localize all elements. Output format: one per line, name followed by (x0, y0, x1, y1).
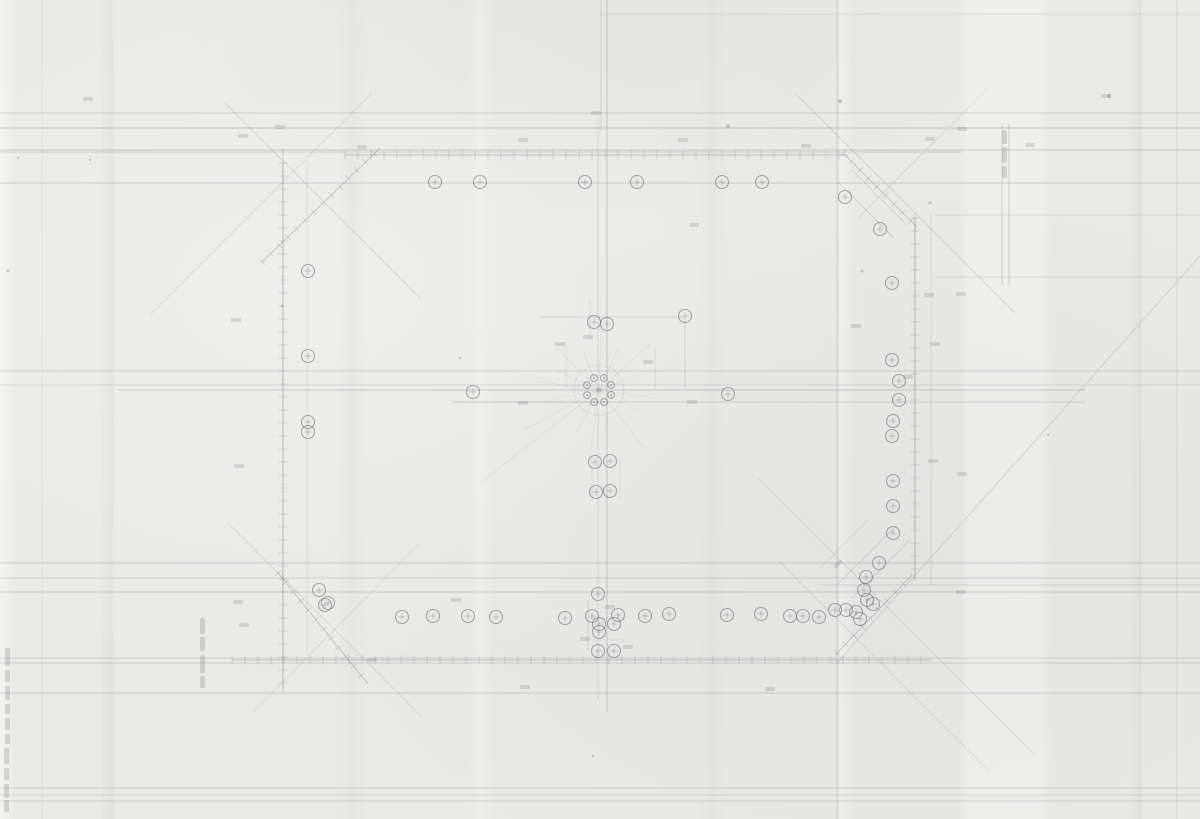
pencil-speck (7, 270, 10, 273)
illegible-vertical-note (1002, 166, 1007, 178)
illegible-note-smudge (956, 590, 966, 594)
starburst-ray (583, 351, 599, 390)
starburst-ray (524, 390, 599, 430)
illegible-vertical-note (200, 618, 205, 634)
illegible-vertical-note (5, 686, 10, 700)
illegible-note-smudge (930, 342, 940, 346)
illegible-note-smudge (367, 658, 377, 662)
illegible-note-smudge (925, 137, 935, 141)
starburst-ray (545, 390, 599, 401)
walk-edge-tick (298, 598, 304, 603)
pencil-speck (459, 357, 461, 359)
walk-edge-line (262, 148, 380, 262)
scanned-sheet (0, 0, 1200, 819)
illegible-note-smudge (678, 138, 688, 142)
illegible-note-smudge (687, 400, 697, 404)
construction-line (795, 93, 1015, 313)
illegible-note-smudge (231, 318, 241, 322)
walk-edge-tick (343, 654, 349, 659)
pencil-speck (281, 305, 283, 307)
illegible-note-smudge (765, 687, 775, 691)
pencil-speck (592, 755, 595, 758)
illegible-note-smudge (234, 464, 244, 468)
illegible-vertical-note (5, 648, 10, 666)
illegible-vertical-note (200, 676, 205, 688)
illegible-vertical-note (1002, 130, 1007, 144)
pencil-speck (929, 202, 932, 205)
illegible-vertical-note (1002, 147, 1007, 163)
illegible-vertical-note (5, 670, 10, 682)
walk-edge-line (843, 153, 917, 227)
illegible-note-smudge (689, 223, 699, 227)
illegible-vertical-note (4, 768, 9, 780)
pencil-speck (1047, 434, 1049, 436)
illegible-note-smudge (957, 472, 967, 476)
illegible-vertical-note (5, 734, 10, 744)
illegible-note-smudge (1025, 143, 1035, 147)
pencil-speck (838, 99, 842, 103)
construction-line (225, 103, 420, 298)
illegible-note-smudge (643, 360, 653, 364)
pencil-speck (726, 124, 730, 128)
illegible-note-smudge (956, 292, 966, 296)
pencil-speck (89, 159, 91, 161)
walk-edge-tick (305, 608, 311, 613)
walk-edge-tick (320, 626, 326, 631)
illegible-vertical-note (4, 748, 9, 764)
illegible-note-smudge (233, 600, 243, 604)
walk-edge-tick (335, 645, 341, 650)
illegible-note-smudge (833, 559, 843, 569)
illegible-note-smudge (518, 138, 528, 142)
illegible-note-smudge (555, 342, 565, 346)
starburst-ray (557, 348, 599, 390)
illegible-note-smudge (451, 598, 461, 602)
illegible-note-smudge (520, 685, 530, 689)
illegible-note-smudge (903, 375, 913, 379)
illegible-note-smudge (239, 623, 249, 627)
illegible-note-smudge (924, 293, 934, 297)
illegible-note-smudge (591, 111, 601, 115)
illegible-note-smudge (238, 134, 248, 138)
pencil-speck (17, 157, 19, 159)
walk-edge-tick (350, 664, 356, 669)
illegible-note-smudge (957, 127, 967, 131)
illegible-vertical-note (4, 800, 9, 812)
illegible-note-smudge (583, 335, 593, 339)
construction-line (852, 170, 907, 225)
construction-line (228, 523, 422, 717)
walk-edge-line (278, 573, 368, 684)
construction-line (253, 543, 420, 712)
illegible-note-smudge (928, 459, 938, 463)
drawing-svg (0, 0, 1200, 819)
illegible-vertical-note (200, 637, 205, 651)
walk-edge-tick (313, 617, 319, 622)
illegible-vertical-note (5, 704, 10, 714)
illegible-note-smudge (605, 605, 615, 609)
illegible-vertical-note (4, 784, 9, 798)
pencil-speck (1107, 94, 1111, 98)
construction-line (150, 93, 372, 315)
walk-edge-tick (328, 636, 334, 641)
construction-line (758, 478, 1035, 755)
illegible-vertical-note (200, 655, 205, 673)
illegible-note-smudge (275, 125, 285, 129)
illegible-note-smudge (357, 145, 367, 149)
walk-edge-line (835, 575, 912, 655)
illegible-vertical-note (5, 718, 10, 730)
walk-edge-tick (358, 673, 364, 678)
pencil-speck (861, 270, 864, 273)
illegible-note-smudge (851, 324, 861, 328)
construction-line (858, 88, 988, 218)
illegible-note-smudge (623, 645, 633, 649)
illegible-note-smudge (83, 97, 93, 101)
illegible-note-smudge (580, 637, 590, 641)
illegible-note-smudge (801, 144, 811, 148)
illegible-note-smudge (518, 401, 528, 405)
starburst-ray (481, 390, 599, 482)
planting-ring-dot (603, 401, 605, 403)
construction-line (838, 525, 897, 584)
construction-line (836, 256, 1200, 664)
starburst-ray (599, 349, 618, 390)
